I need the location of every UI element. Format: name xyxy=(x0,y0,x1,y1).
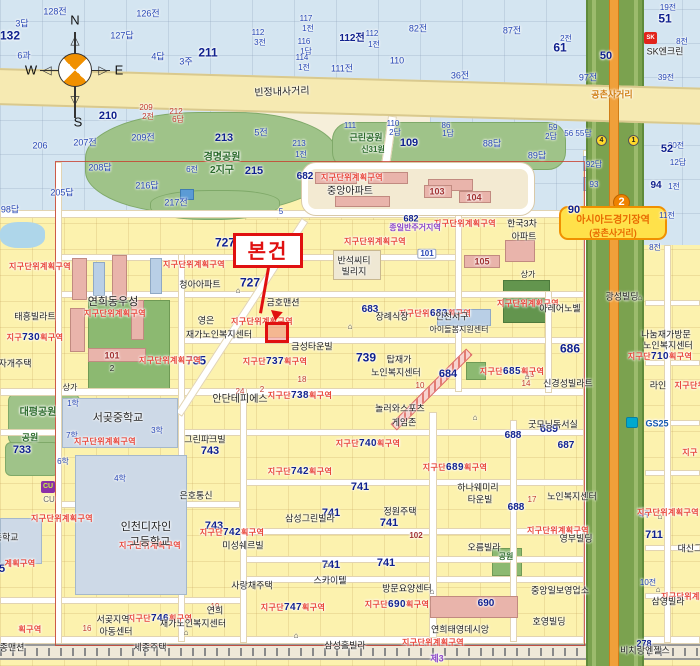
house-icon: ⌂ xyxy=(525,373,530,381)
district-zone-label: 지구단위계획구역 xyxy=(9,263,71,271)
lot-number: 88답 xyxy=(483,139,501,148)
lot-number: 213 xyxy=(292,140,305,148)
district-zone-label: 지구단742획구역 xyxy=(268,467,332,478)
place-label: 종맨션 xyxy=(0,643,24,652)
place-label: 2 xyxy=(110,365,114,373)
place-label: 아동센터 xyxy=(99,627,132,636)
district-zone-label: 지구단738획구역 xyxy=(268,391,332,402)
place-label: 반석씨티 xyxy=(337,256,370,265)
place-label: 영부빌딩 xyxy=(559,534,592,543)
park-label: 신31원 xyxy=(361,146,385,154)
block-number: 94 xyxy=(650,181,661,192)
subject-parcel-highlight xyxy=(265,322,289,343)
place-label: 초등학교 xyxy=(0,533,19,542)
block-number: 688 xyxy=(505,431,522,442)
place-label: 삼영빌라 xyxy=(651,597,684,606)
lot-number: 18 xyxy=(298,376,307,384)
district-zone-label: 지구단위계획구역 xyxy=(637,509,699,517)
lot-number: 1학 xyxy=(67,400,79,408)
zoning-label: 종일반주거지역 xyxy=(389,224,441,232)
lot-number-chip: 101 xyxy=(417,249,436,259)
labels-layer: 128전126전127답3답6과4답3주207전206209전208답205답2… xyxy=(0,0,700,666)
place-label: 금호맨션 xyxy=(266,298,299,307)
place-label: 인천디자인 xyxy=(121,522,172,534)
block-number: 51 xyxy=(658,13,671,26)
lot-number: 209전 xyxy=(131,133,154,142)
zoning-label: 제3 xyxy=(430,654,443,663)
lot-number: 97전 xyxy=(579,73,597,82)
block-number: 743 xyxy=(201,446,219,458)
house-icon: ⌂ xyxy=(430,588,435,596)
park-label: 2지구 xyxy=(210,166,234,177)
place-label: 오름빌라 xyxy=(467,543,500,552)
place-label: 신경성빌라트 xyxy=(543,379,593,388)
lot-number: 127답 xyxy=(110,31,133,40)
district-zone-label: 지구단위계획구역 xyxy=(402,639,464,647)
block-number: 52 xyxy=(661,144,673,156)
lot-number: 2답 xyxy=(389,129,401,137)
building-number: 102 xyxy=(409,532,422,540)
district-zone-label: 지구단위계획구역 xyxy=(321,174,383,182)
lot-number: 12답 xyxy=(670,159,686,167)
lot-number: 6과 xyxy=(17,51,30,60)
subject-callout-label: 본건 xyxy=(248,241,289,263)
block-number: 741 xyxy=(351,482,369,494)
house-icon: ⌂ xyxy=(325,561,330,569)
block-number: 132 xyxy=(0,30,20,43)
place-label: 상가 xyxy=(521,271,536,279)
lot-number: 6답 xyxy=(172,116,184,124)
place-label: 아이돌봄지원센터 xyxy=(430,326,489,334)
lot-number: 208답 xyxy=(88,163,111,172)
place-label: 중앙일보영업소 xyxy=(531,586,589,595)
house-icon: ⌂ xyxy=(658,513,663,521)
district-zone-label: 지구단689획구역 xyxy=(423,463,487,474)
lot-number: 93 xyxy=(590,181,599,189)
lot-number: 36전 xyxy=(451,71,469,80)
lot-number: 82전 xyxy=(409,24,427,33)
building-number: 104 xyxy=(466,193,481,202)
place-label: 서곶지역 xyxy=(96,615,129,624)
district-zone-label: 획구역 xyxy=(18,626,41,634)
place-label: 고등학교 xyxy=(130,537,170,549)
block-number: 739 xyxy=(356,352,376,365)
house-icon: ⌂ xyxy=(473,414,478,422)
lot-number: 98답 xyxy=(1,205,19,214)
lot-number: 1전 xyxy=(302,25,314,33)
place-label: 사랑채주택 xyxy=(231,581,272,590)
lot-number: 2전 xyxy=(142,113,154,121)
place-label: 장례식장 xyxy=(375,312,408,321)
house-icon: ⌂ xyxy=(656,586,661,594)
house-icon: ⌂ xyxy=(348,323,353,331)
place-label: 굿모닝독서실 xyxy=(528,420,578,429)
block-number: 211 xyxy=(198,47,217,60)
road-name-label: 공촌사거리 xyxy=(591,90,632,99)
lot-number: 8전 xyxy=(676,38,688,46)
district-zone-label: 지구단위계획구역 xyxy=(434,220,496,228)
park-label: 공원 xyxy=(22,433,39,442)
building-number: 101 xyxy=(104,351,119,360)
place-label: 삼성그린빌라 xyxy=(285,514,335,523)
place-label: 놀러와스포츠 xyxy=(375,404,425,413)
block-number: 687 xyxy=(558,441,575,452)
place-label: 라인 xyxy=(650,381,667,390)
lot-number: 56 55답 xyxy=(564,130,591,138)
place-label: 스카이텔 xyxy=(313,576,346,585)
lot-number: 16 xyxy=(83,625,92,633)
block-number: 711 xyxy=(645,530,663,542)
lot-number: 17 xyxy=(528,496,537,504)
place-label: 미성쉐르빌 xyxy=(222,541,263,550)
lot-number: 89답 xyxy=(528,151,546,160)
block-number: 90 xyxy=(568,205,580,217)
lot-number: 117 xyxy=(300,15,313,23)
place-label: 타운빌 xyxy=(468,495,493,504)
place-label: 노인복지센터 xyxy=(643,341,693,350)
place-label: 그린파크빌 xyxy=(184,435,225,444)
district-zone-label: 지구단685획구역 xyxy=(480,367,544,378)
place-label: 영은 xyxy=(198,316,215,325)
house-icon: ⌂ xyxy=(184,629,189,637)
district-zone-label: 지구단740획구역 xyxy=(336,439,400,450)
lot-number: 112 xyxy=(366,30,379,38)
lot-number: 128전 xyxy=(43,7,66,16)
lot-number: 1전 xyxy=(298,64,310,72)
place-label: 중앙아파트 xyxy=(327,187,373,198)
place-label: 금성타운빌 xyxy=(291,342,332,351)
lot-number: 5전 xyxy=(254,128,267,137)
house-icon: ⌂ xyxy=(208,433,213,441)
place-label: 아레어노벨 xyxy=(539,304,580,313)
district-zone-label: 계획구역 xyxy=(4,560,35,568)
district-zone-label: 지구단위 xyxy=(674,382,700,390)
district-zone-label: 지구 xyxy=(682,449,698,457)
lot-number: 110 xyxy=(390,56,404,65)
lot-number: 206 xyxy=(32,141,47,150)
house-icon: ⌂ xyxy=(638,294,643,302)
building-number: 103 xyxy=(429,187,444,196)
lot-number: 112 xyxy=(252,29,265,37)
block-number: 109 xyxy=(400,138,418,150)
place-label: 인천서구 xyxy=(435,312,468,321)
park-label: 근린공원 xyxy=(349,133,382,142)
lot-number: 2답 xyxy=(545,133,557,141)
place-label: 재가노인복지센터 xyxy=(186,330,252,339)
lot-number: 92답 xyxy=(586,161,602,169)
lot-number: 4학 xyxy=(114,475,126,483)
block-number: 210 xyxy=(99,111,117,123)
place-label: 방문요양센터 xyxy=(382,584,432,593)
place-label: 서곶중학교 xyxy=(93,413,144,425)
lot-number: 114 xyxy=(296,54,309,62)
district-zone-label: 지구단위계획구역 xyxy=(74,438,136,446)
place-label: 하나웨미리 xyxy=(457,483,498,492)
place-label: 빈정내사거리 xyxy=(254,87,310,99)
place-label: 정원주택 xyxy=(383,507,416,516)
lot-number: 111전 xyxy=(331,64,353,73)
lot-number: 5 xyxy=(279,208,283,216)
lot-number: 8전 xyxy=(649,244,661,252)
place-label: 은호통신 xyxy=(179,491,212,500)
place-label: 연희동우성 xyxy=(88,297,139,309)
lot-number: 1답 xyxy=(442,130,454,138)
block-number: 690 xyxy=(478,599,495,610)
block-number: 112전 xyxy=(339,34,364,45)
house-icon: ⌂ xyxy=(294,632,299,640)
lot-number: 3답 xyxy=(15,19,28,28)
district-zone-label: 지구단위계획구역 xyxy=(163,261,225,269)
block-number: 733 xyxy=(13,445,31,457)
lot-number: 126전 xyxy=(136,9,159,18)
place-label: 호영빌딩 xyxy=(532,617,565,626)
lot-number: 1전 xyxy=(668,183,680,191)
lot-number: 10전 xyxy=(640,579,656,587)
place-label: 비치랑엔젤스 xyxy=(620,646,670,655)
district-zone-label: 지구단710획구역 xyxy=(628,352,692,363)
district-zone-label: 지구단690획구역 xyxy=(365,600,429,611)
district-zone-label: 지구단737획구역 xyxy=(243,357,307,368)
lot-number: 3주 xyxy=(179,57,192,66)
block-number: 50 xyxy=(600,51,612,63)
block-number: 727 xyxy=(215,237,235,250)
district-zone-label: 지구단747획구역 xyxy=(261,603,325,614)
place-label: 청아아파트 xyxy=(179,280,220,289)
block-number: 741 xyxy=(377,558,395,570)
lot-number: 4답 xyxy=(151,52,164,61)
place-label: 광성빌딩 xyxy=(605,292,638,301)
block-number: 213 xyxy=(215,133,233,145)
place-label: 연희 xyxy=(207,606,224,615)
park-label: 대평공원 xyxy=(20,408,57,419)
block-number: 682 xyxy=(297,172,314,183)
lot-number: 3전 xyxy=(254,39,266,47)
park-label: 공원 xyxy=(499,553,514,561)
lot-number: 11전 xyxy=(659,212,675,220)
house-icon: ⌂ xyxy=(236,287,241,295)
place-label: 재가노인복지센터 xyxy=(160,619,226,628)
block-number: 727 xyxy=(240,277,260,290)
place-label: 자개주택 xyxy=(0,359,32,368)
place-label: 탑재가 xyxy=(387,355,412,364)
block-number: 215 xyxy=(245,166,263,178)
place-label: 게임존 xyxy=(392,418,417,427)
lot-number: 207전 xyxy=(73,138,96,147)
place-label: 한국3차 xyxy=(507,219,537,228)
park-label: 경명공원 xyxy=(204,153,241,164)
place-label: 나눔재가방문 xyxy=(641,330,691,339)
place-label: 빌리지 xyxy=(342,267,367,276)
block-number: 61 xyxy=(553,42,566,55)
lot-number: 116 xyxy=(298,38,311,46)
place-label: 태흥빌라트 xyxy=(14,312,55,321)
block-number: 741 xyxy=(380,518,398,530)
subject-arrow-head-icon xyxy=(269,310,283,322)
lot-number: 39전 xyxy=(658,74,674,82)
place-label: 세종주택 xyxy=(133,643,166,652)
place-label: 대신그 xyxy=(678,544,700,553)
lot-number: 3학 xyxy=(151,427,163,435)
lot-number: 217전 xyxy=(164,198,187,207)
subject-callout: 본건 xyxy=(233,233,303,268)
lot-number: 87전 xyxy=(503,26,521,35)
block-number: 684 xyxy=(439,369,457,381)
district-zone-label: 지구730획구역 xyxy=(7,333,64,344)
building-number: 105 xyxy=(474,257,489,266)
district-zone-label: 지구단742획구역 xyxy=(200,528,264,539)
block-number: 686 xyxy=(560,343,580,356)
place-label: 상가 xyxy=(63,384,78,392)
lot-number: 6학 xyxy=(57,458,69,466)
district-zone-label: 지구단위계획구역 xyxy=(84,310,146,318)
lot-number: 1전 xyxy=(368,41,380,49)
place-label: 노인복지센터 xyxy=(547,492,597,501)
place-label: 연희태영데시앙 xyxy=(431,625,489,634)
place-label: 삼성홀빌라 xyxy=(324,641,365,650)
place-label: 안단테피에스 xyxy=(212,395,267,406)
lot-number: 216답 xyxy=(135,181,158,190)
district-zone-label: 지구단위계획구역 xyxy=(139,357,201,365)
lot-number: 111 xyxy=(344,122,356,130)
lot-number: 1전 xyxy=(295,151,307,159)
block-number: 688 xyxy=(508,503,525,514)
lot-number: 6전 xyxy=(186,166,198,174)
place-label: 노인복지센터 xyxy=(371,368,421,377)
place-label: 아파트 xyxy=(512,232,537,241)
lot-number: 10 xyxy=(416,382,425,390)
district-zone-label: 지구단위계획구역 xyxy=(344,238,406,246)
lot-number: 205답 xyxy=(50,188,73,197)
district-zone-label: 지구단위계획구역 xyxy=(31,515,93,523)
map-canvas: N S W E △ ▽ ◁ ▷ 4 1 2 아시아드경기장역 (공촌사거리) S… xyxy=(0,0,700,666)
